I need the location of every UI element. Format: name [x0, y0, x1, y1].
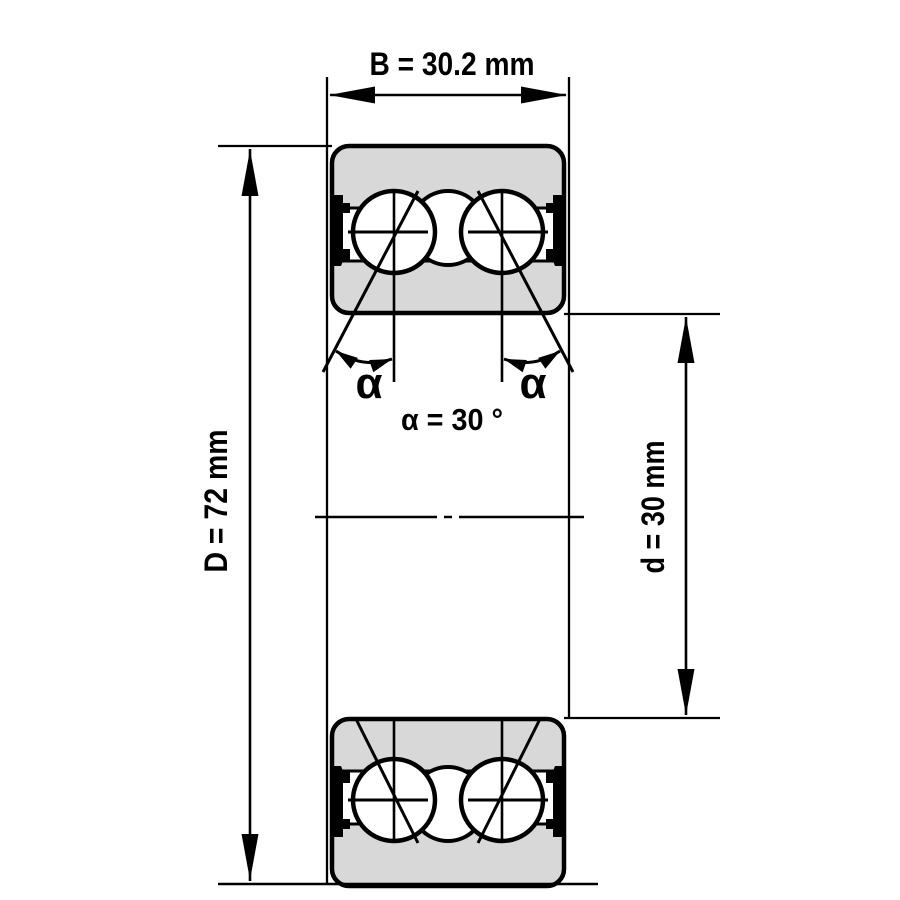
- contact-angle-value-label: α = 30 °: [401, 402, 503, 437]
- bottom-bearing-section: [328, 717, 568, 888]
- contact-angle-symbol-right: α: [519, 359, 546, 408]
- arrowhead-d-outer-top: [242, 150, 259, 196]
- bore-diameter-label: d = 30 mm: [635, 441, 671, 574]
- seal-bottom-right: [546, 766, 564, 837]
- bearing-technical-drawing: B = 30.2 mm D = 72 mm d = 30 mm α α α = …: [0, 0, 900, 900]
- width-dimension-label: B = 30.2 mm: [370, 46, 535, 82]
- seal-top-right: [546, 195, 564, 266]
- contact-angle-annotation: α α α = 30 °: [332, 346, 563, 437]
- bore-diameter-dimension: d = 30 mm: [564, 314, 720, 718]
- arrowhead-d-bore-top: [678, 317, 695, 363]
- seal-bottom-left: [332, 766, 350, 837]
- arrowhead-d-outer-bottom: [242, 834, 259, 880]
- inner-ring-top: [328, 261, 568, 315]
- contact-angle-symbol-left: α: [355, 359, 382, 408]
- arrowhead-b-right: [521, 87, 567, 104]
- arrowhead-b-left: [329, 87, 375, 104]
- inner-ring-bottom: [328, 717, 568, 771]
- arrowhead-d-bore-bottom: [678, 669, 695, 715]
- drawing-canvas: B = 30.2 mm D = 72 mm d = 30 mm α α α = …: [0, 0, 900, 900]
- outer-diameter-label: D = 72 mm: [198, 430, 234, 573]
- seal-top-left: [332, 195, 350, 266]
- top-bearing-section: [323, 144, 573, 382]
